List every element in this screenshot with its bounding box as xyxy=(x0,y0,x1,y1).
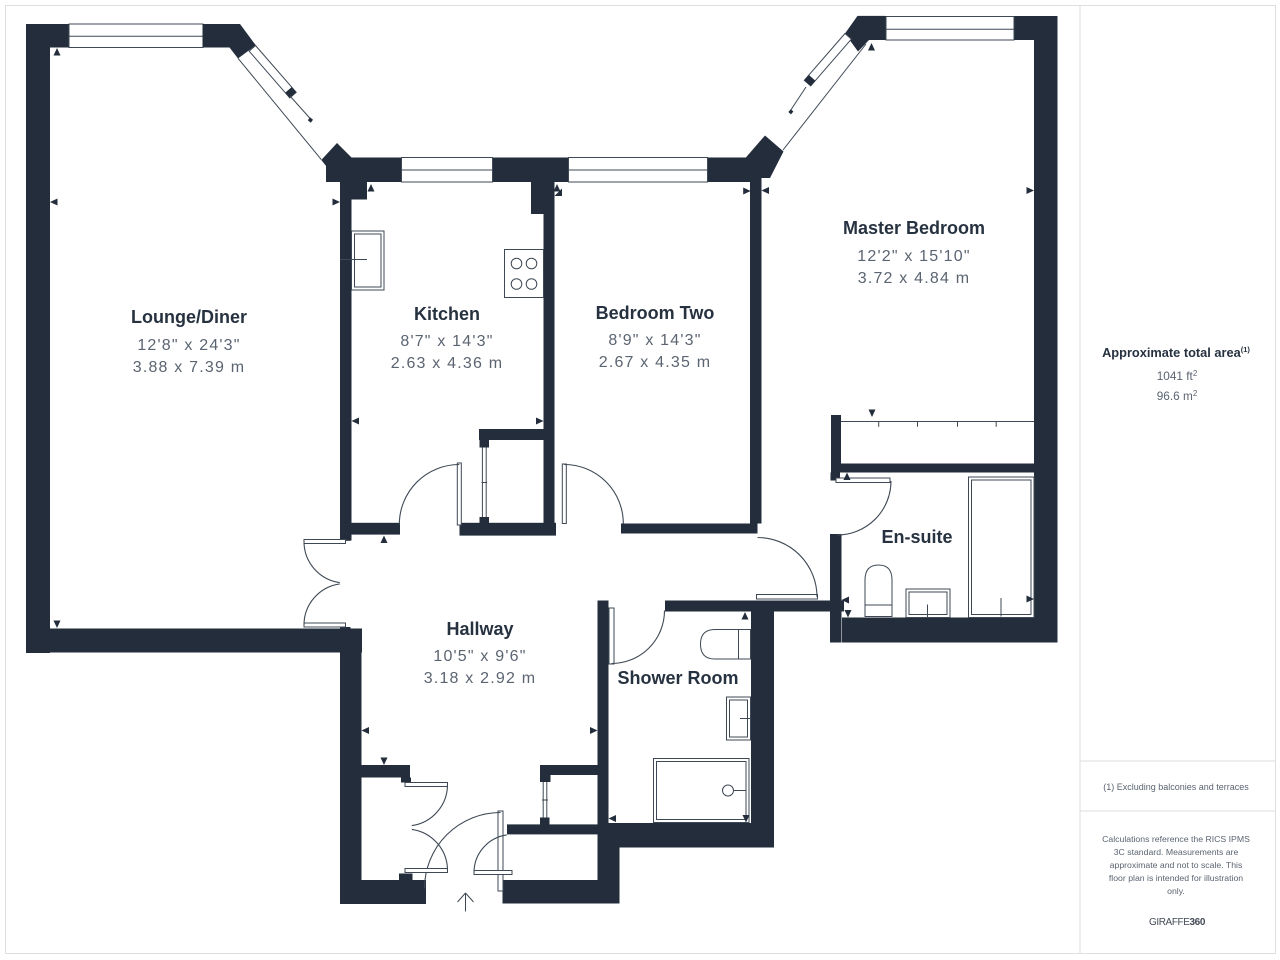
svg-text:Bedroom Two: Bedroom Two xyxy=(596,303,715,323)
svg-text:12'8" x 24'3": 12'8" x 24'3" xyxy=(137,337,240,354)
svg-text:(1) Excluding balconies and te: (1) Excluding balconies and terraces xyxy=(1103,782,1249,792)
svg-text:Lounge/Diner: Lounge/Diner xyxy=(131,307,247,327)
svg-text:3C standard. Measurements are: 3C standard. Measurements are xyxy=(1114,847,1239,857)
svg-text:Hallway: Hallway xyxy=(446,619,513,639)
svg-text:GIRAFFE360: GIRAFFE360 xyxy=(1149,917,1206,928)
svg-text:3.88 x 7.39 m: 3.88 x 7.39 m xyxy=(133,359,246,376)
svg-text:Master Bedroom: Master Bedroom xyxy=(843,218,985,238)
svg-text:2.63 x 4.36 m: 2.63 x 4.36 m xyxy=(391,355,504,372)
svg-text:only.: only. xyxy=(1167,886,1185,896)
svg-text:Calculations reference the RIC: Calculations reference the RICS IPMS xyxy=(1102,834,1250,844)
svg-text:Approximate total area(1): Approximate total area(1) xyxy=(1102,345,1250,360)
svg-text:8'9" x 14'3": 8'9" x 14'3" xyxy=(608,332,701,349)
svg-text:12'2" x 15'10": 12'2" x 15'10" xyxy=(857,248,970,265)
svg-text:approximate and not to scale.: approximate and not to scale. This xyxy=(1110,860,1243,870)
svg-text:Shower Room: Shower Room xyxy=(617,668,738,688)
svg-text:2.67 x 4.35 m: 2.67 x 4.35 m xyxy=(599,354,712,371)
svg-text:3.72 x 4.84 m: 3.72 x 4.84 m xyxy=(858,270,971,287)
svg-text:Kitchen: Kitchen xyxy=(414,304,480,324)
svg-text:floor plan is intended for ill: floor plan is intended for illustration xyxy=(1109,873,1243,883)
svg-text:8'7" x 14'3": 8'7" x 14'3" xyxy=(400,333,493,350)
svg-text:10'5" x 9'6": 10'5" x 9'6" xyxy=(433,648,526,665)
svg-text:96.6 m2: 96.6 m2 xyxy=(1157,389,1198,403)
svg-text:En-suite: En-suite xyxy=(881,527,952,547)
svg-text:3.18 x 2.92 m: 3.18 x 2.92 m xyxy=(424,670,537,687)
svg-text:1041 ft2: 1041 ft2 xyxy=(1157,369,1198,383)
